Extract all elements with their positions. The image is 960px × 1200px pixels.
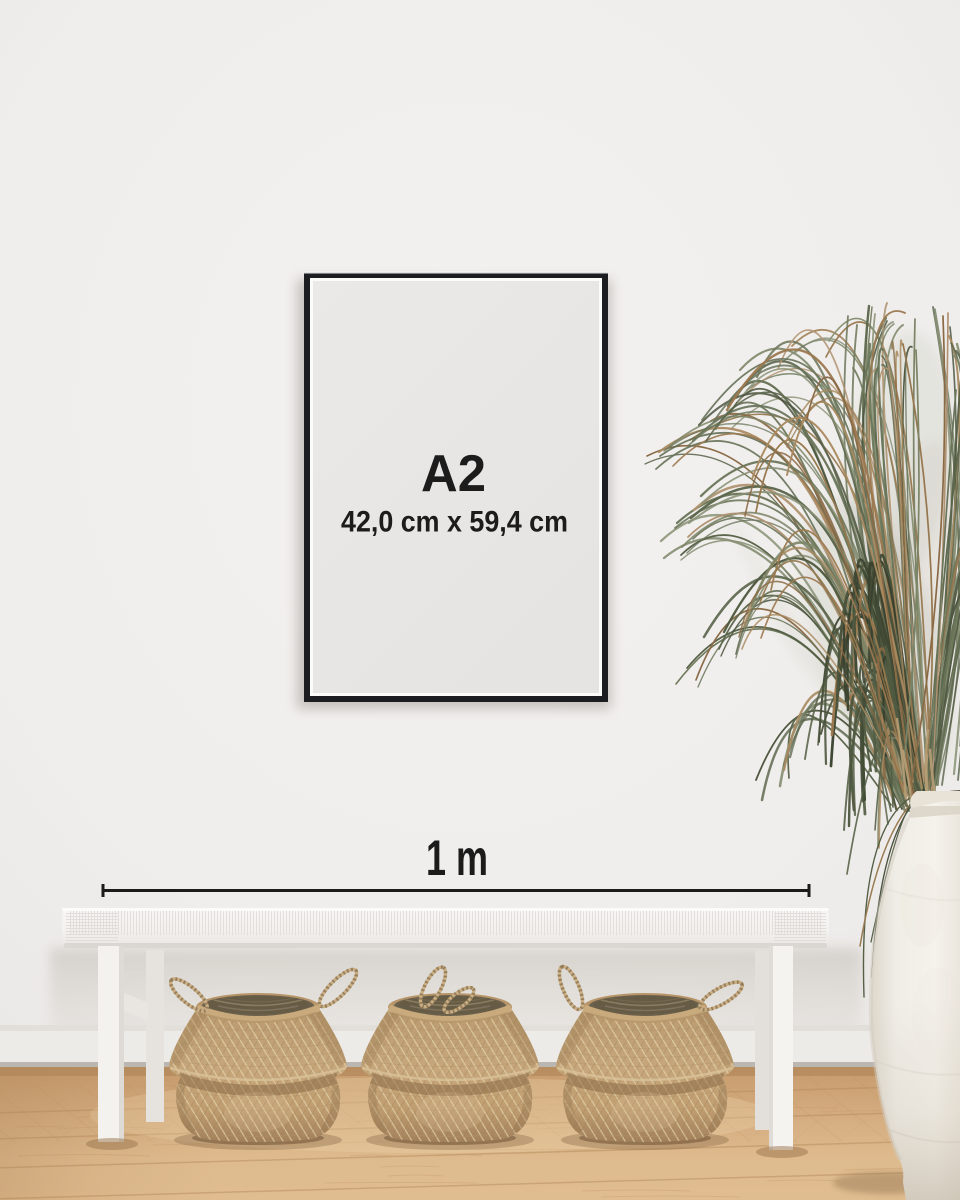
svg-text:A2: A2 bbox=[421, 445, 486, 503]
svg-text:42,0 cm x 59,4 cm: 42,0 cm x 59,4 cm bbox=[341, 506, 568, 539]
svg-text:1 m: 1 m bbox=[426, 830, 488, 886]
